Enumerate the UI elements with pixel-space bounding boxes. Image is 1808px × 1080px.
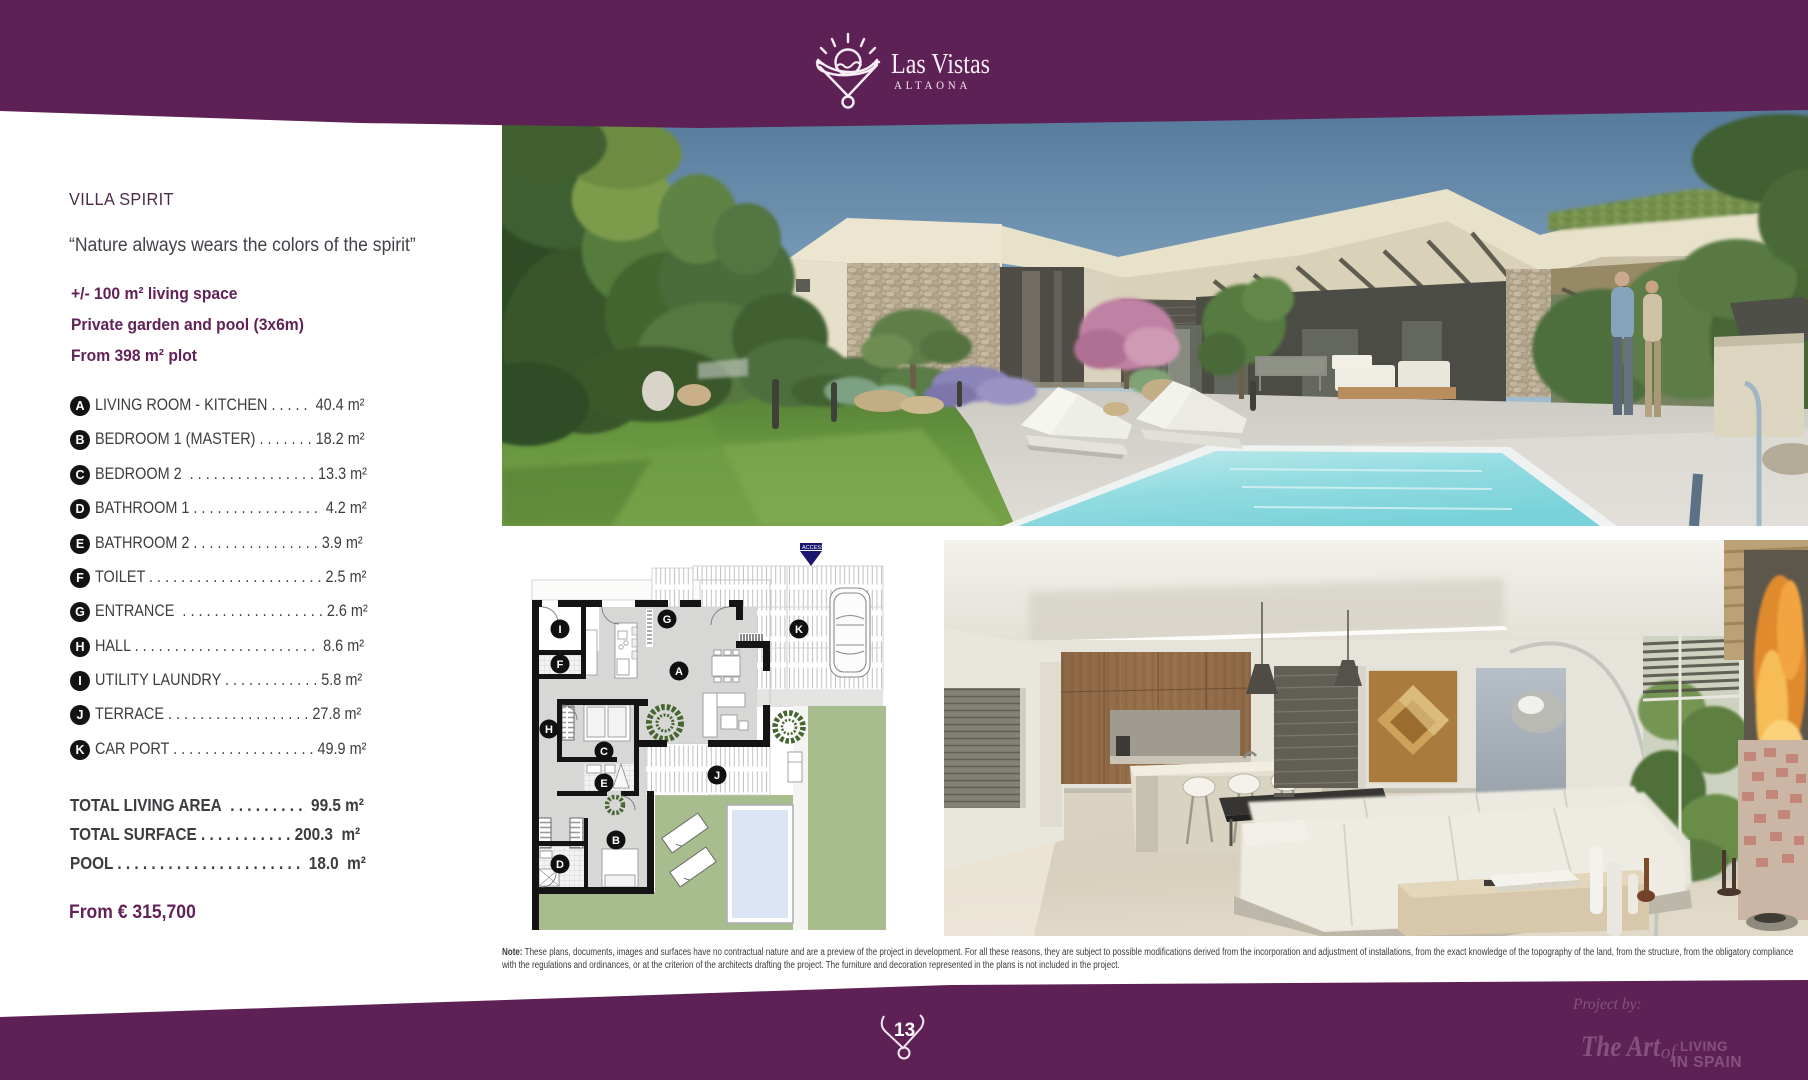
svg-text:Las Vistas: Las Vistas xyxy=(891,49,990,80)
svg-text:H: H xyxy=(545,724,553,736)
svg-text:C: C xyxy=(600,746,608,758)
svg-text:ALTAONA: ALTAONA xyxy=(894,78,971,92)
svg-text:D: D xyxy=(556,859,564,871)
svg-text:The Art: The Art xyxy=(1581,1030,1661,1063)
svg-text:Project by:: Project by: xyxy=(1572,996,1642,1013)
svg-text:G: G xyxy=(663,614,672,626)
svg-text:ACCESS: ACCESS xyxy=(802,545,825,551)
svg-text:F: F xyxy=(557,659,564,671)
svg-text:A: A xyxy=(675,666,683,678)
svg-text:J: J xyxy=(714,770,720,782)
svg-text:LIVING: LIVING xyxy=(1680,1039,1728,1054)
svg-text:B: B xyxy=(612,835,620,847)
svg-text:13: 13 xyxy=(894,1020,915,1041)
svg-text:I: I xyxy=(558,624,561,636)
svg-text:K: K xyxy=(795,624,803,636)
svg-text:IN SPAIN: IN SPAIN xyxy=(1672,1054,1742,1071)
svg-text:E: E xyxy=(600,778,607,790)
